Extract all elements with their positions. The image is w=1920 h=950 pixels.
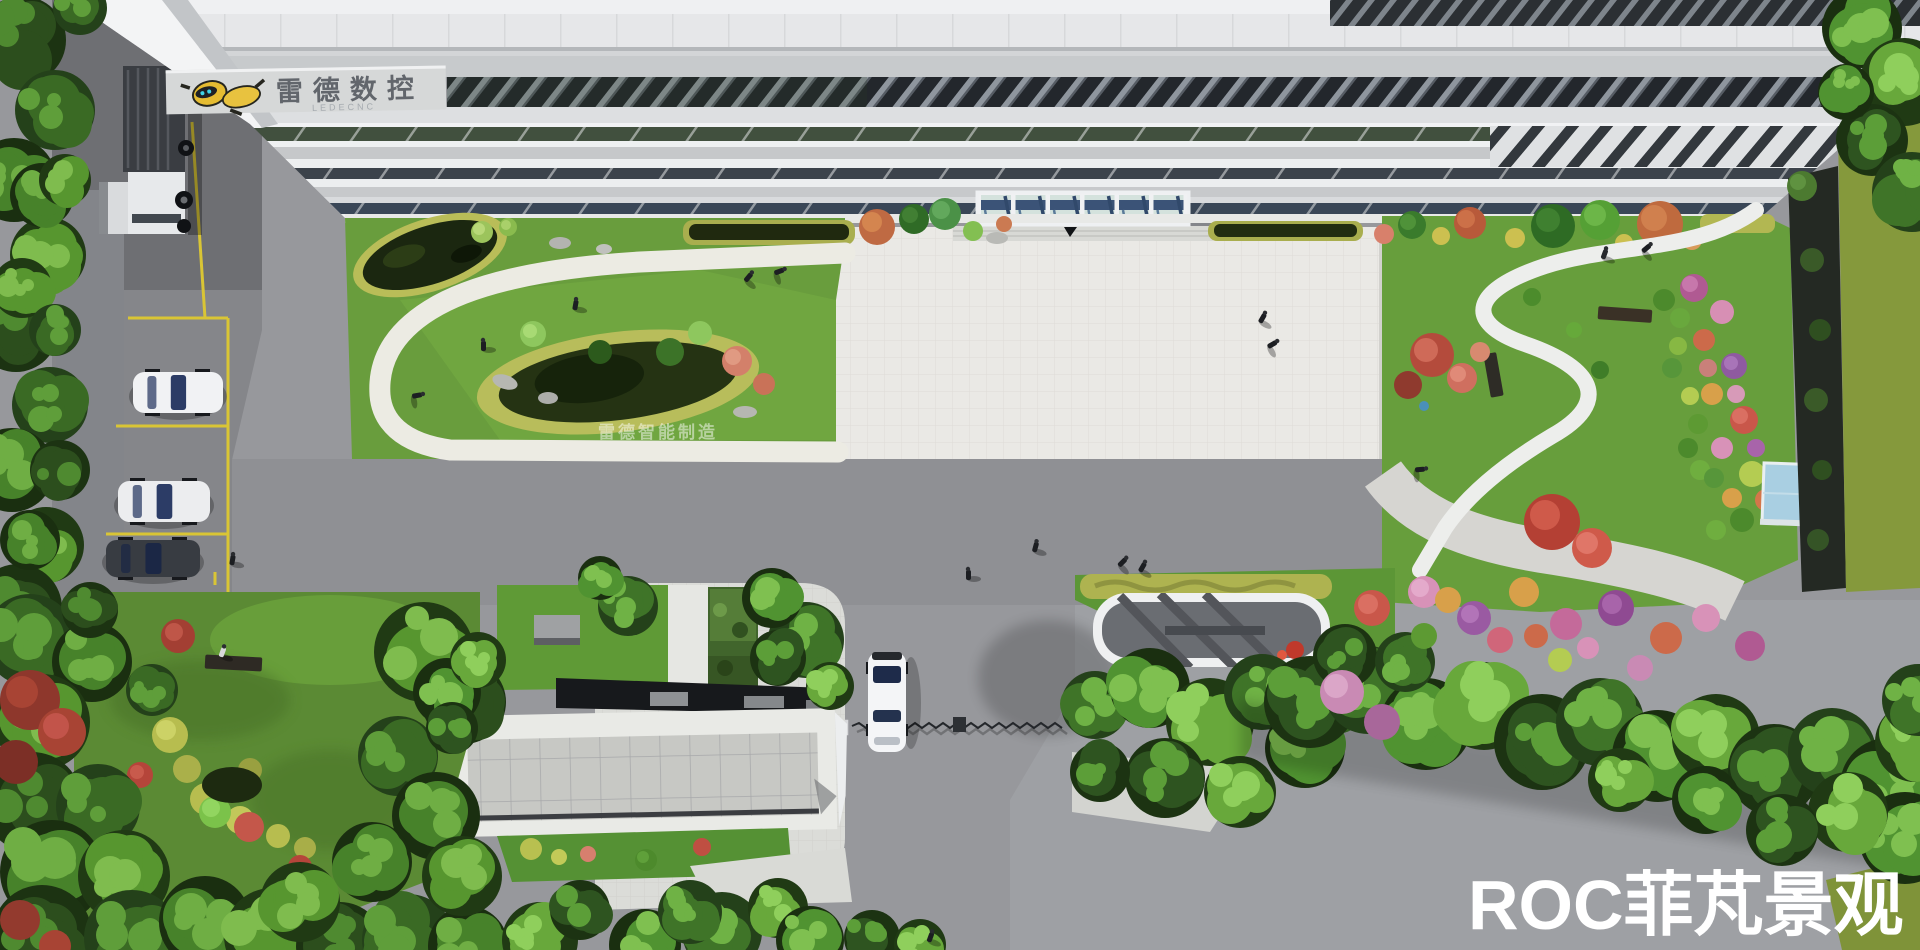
svg-text:ROC菲芃景观: ROC菲芃景观 — [1468, 866, 1904, 944]
svg-text:LEDECNC: LEDECNC — [312, 101, 376, 113]
svg-text:雷德智能制造: 雷德智能制造 — [598, 422, 718, 442]
